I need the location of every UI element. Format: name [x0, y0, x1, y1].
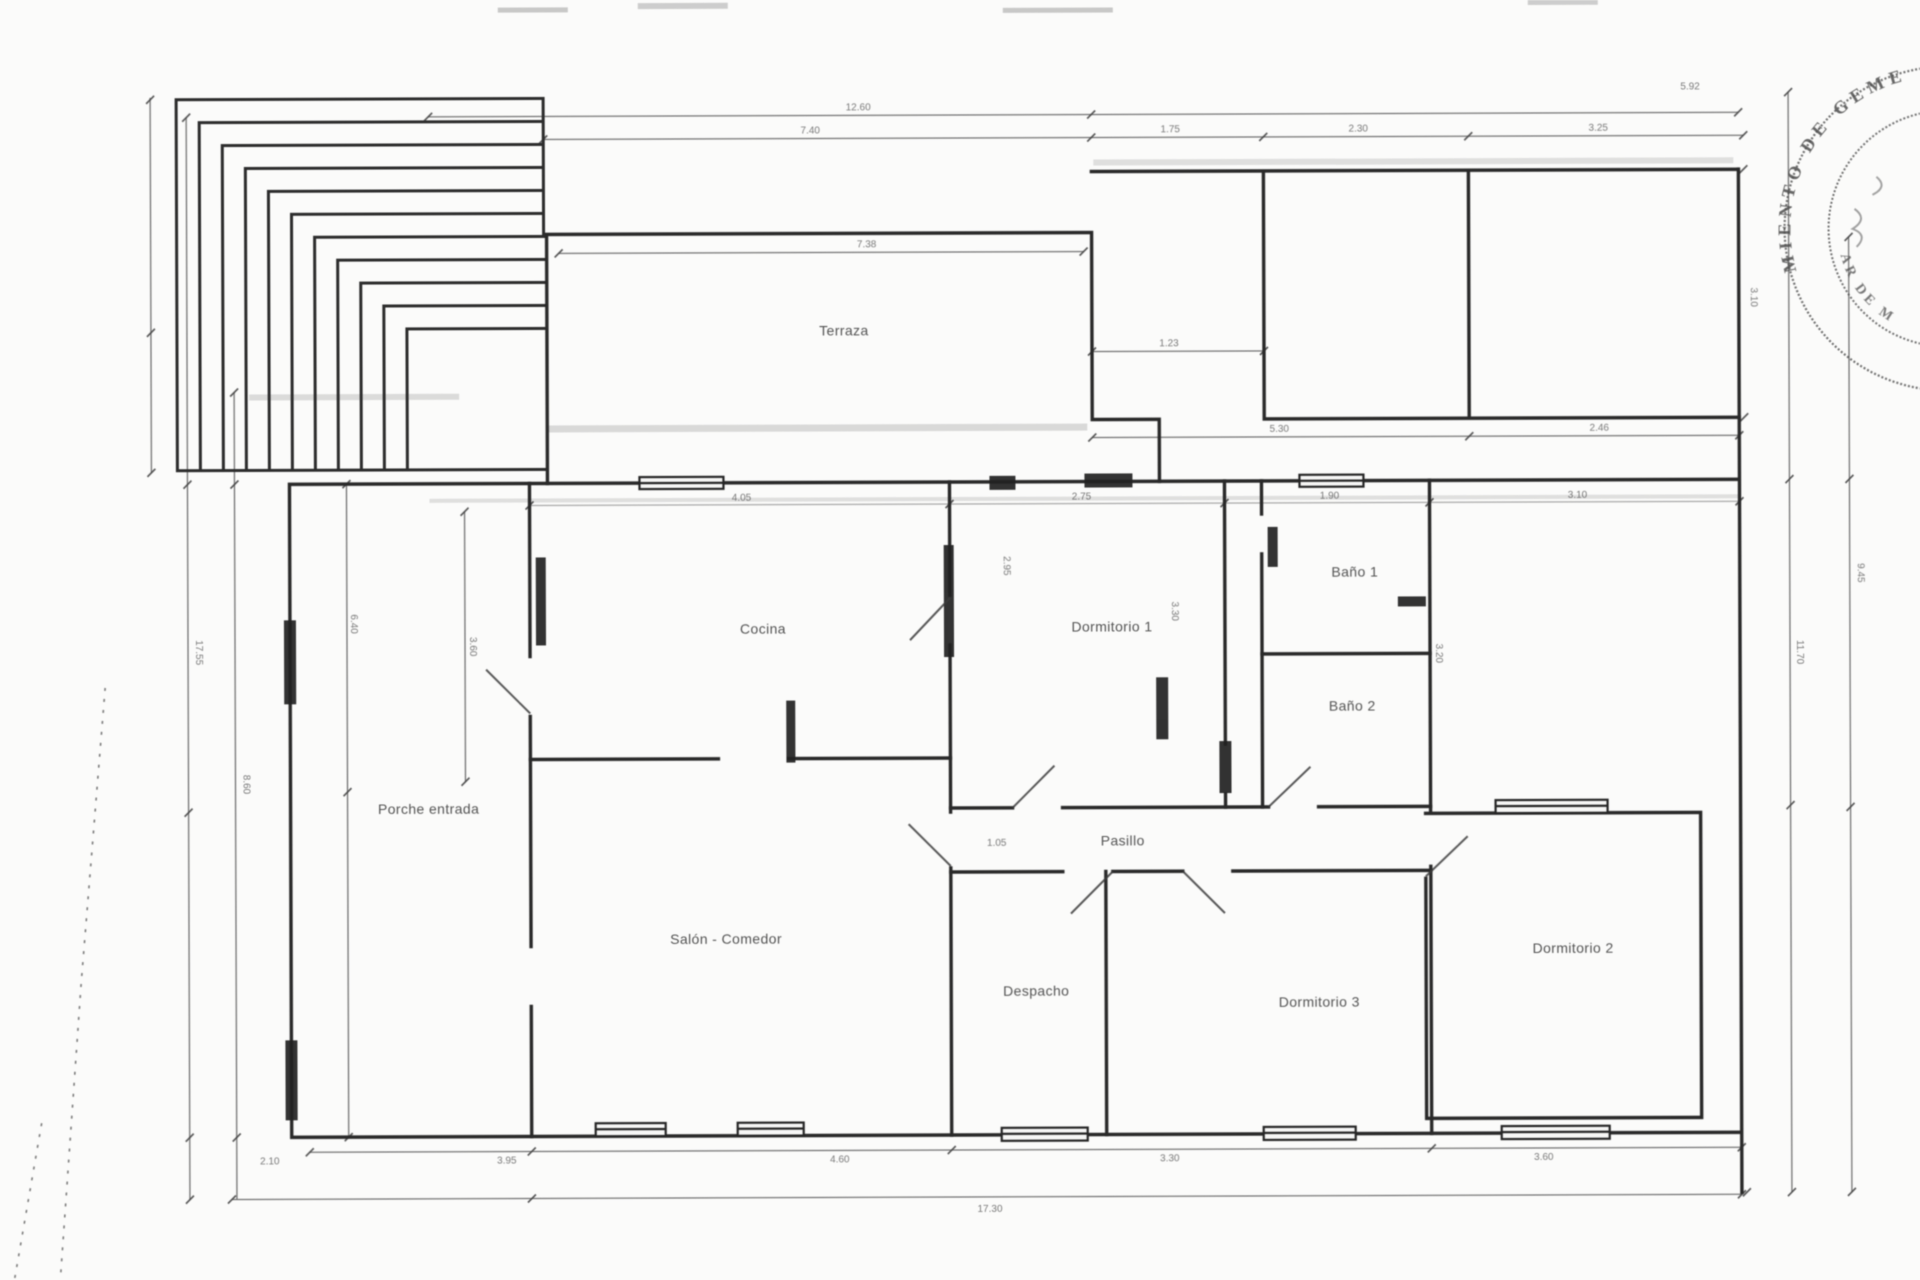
dimension-label: 3.30 [1169, 601, 1180, 621]
dimension-label: 1.90 [1320, 491, 1340, 502]
dimension-label: 3.20 [1433, 644, 1444, 664]
dimension-label: 3.60 [1534, 1152, 1554, 1163]
stamp-outer-text: MIENTO DE GEME [1774, 64, 1910, 274]
room-label-terraza: Terraza [819, 322, 869, 338]
dimension-label: 3.10 [1748, 287, 1759, 307]
dimension-label: 2.75 [1072, 492, 1092, 503]
dimension-label: 1.05 [987, 838, 1007, 849]
dimension-label: 2.10 [260, 1156, 280, 1167]
dimension-label: 17.30 [977, 1204, 1003, 1215]
dimension-label: 3.10 [1568, 490, 1588, 501]
dimension-label: 5.30 [1270, 424, 1290, 435]
dimension-label: 2.46 [1590, 423, 1610, 434]
dimension-ticks [146, 88, 1856, 1204]
room-label-pasillo: Pasillo [1101, 832, 1145, 848]
room-label-despacho: Despacho [1003, 983, 1069, 999]
room-label-cocina: Cocina [740, 621, 786, 637]
dimension-label: 7.40 [800, 125, 820, 136]
dimension-label: 17.55 [193, 640, 204, 666]
dimension-label: 2.30 [1348, 124, 1368, 135]
plot-boundary-dashed [12, 688, 107, 1280]
dimension-label: 3.30 [1160, 1153, 1180, 1164]
dimension-label: 1.23 [1159, 338, 1179, 349]
room-label-salon: Salón - Comedor [670, 931, 782, 947]
dimension-label: 9.45 [1855, 563, 1866, 583]
walls [288, 169, 1742, 1197]
dimension-label: 4.05 [732, 493, 752, 504]
dimension-label: 4.60 [830, 1154, 850, 1165]
room-labels: Terraza Cocina Dormitorio 1 Baño 1 Baño … [376, 320, 1614, 1013]
dimension-label: 3.60 [467, 637, 478, 657]
dimension-label: 3.25 [1588, 123, 1608, 134]
room-label-porche: Porche entrada [378, 801, 479, 817]
official-stamp: MIENTO DE GEME AR DE M [1774, 63, 1920, 391]
dimension-label: 8.60 [240, 775, 251, 795]
room-label-bano1: Baño 1 [1331, 564, 1378, 580]
scanned-floorplan-page: Terraza Cocina Dormitorio 1 Baño 1 Baño … [0, 0, 1920, 1280]
room-label-dormitorio1: Dormitorio 1 [1071, 618, 1152, 634]
stamp-inner-scribble [1852, 177, 1881, 247]
dimension-label: 3.95 [497, 1156, 517, 1167]
dimension-label: 5.92 [1680, 81, 1700, 92]
door-leaves [486, 596, 1468, 915]
dimension-label: 1.75 [1160, 124, 1180, 135]
dimension-label: 7.38 [857, 239, 877, 250]
dimension-lines [150, 92, 1852, 1200]
room-label-dormitorio3: Dormitorio 3 [1279, 994, 1360, 1010]
dimension-label: 2.95 [1001, 556, 1012, 576]
floorplan-drawing: Terraza Cocina Dormitorio 1 Baño 1 Baño … [0, 0, 1920, 1280]
dimension-label: 12.60 [846, 102, 872, 113]
wall-poche [283, 472, 1427, 1120]
dimension-label: 11.70 [1794, 640, 1805, 665]
staircase [176, 98, 544, 470]
room-label-dormitorio2: Dormitorio 2 [1533, 940, 1614, 956]
dimension-label: 6.40 [348, 614, 359, 634]
room-label-bano2: Baño 2 [1329, 698, 1376, 714]
